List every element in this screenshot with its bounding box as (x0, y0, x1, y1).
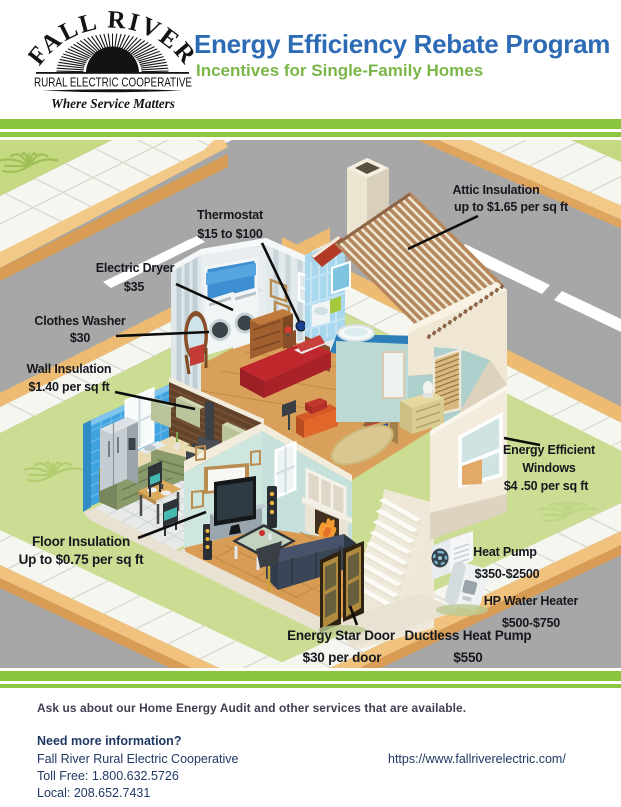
svg-text:$35: $35 (124, 280, 145, 294)
svg-text:Ductless Heat Pump: Ductless Heat Pump (405, 628, 532, 643)
svg-text:Wall Insulation: Wall Insulation (27, 362, 112, 376)
svg-text:$15 to $100: $15 to $100 (197, 227, 262, 241)
svg-text:Clothes Washer: Clothes Washer (34, 314, 126, 328)
svg-text:Electric Dryer: Electric Dryer (96, 261, 175, 275)
svg-text:HP Water Heater: HP Water Heater (484, 594, 579, 608)
svg-text:Thermostat: Thermostat (197, 208, 264, 222)
svg-text:Where Service Matters: Where Service Matters (51, 96, 175, 111)
svg-text:Attic Insulation: Attic Insulation (452, 183, 539, 197)
svg-text:Energy Efficient: Energy Efficient (503, 443, 596, 457)
svg-text:$4 .50 per sq ft: $4 .50 per sq ft (504, 479, 589, 493)
svg-text:up to $1.65 per sq ft: up to $1.65 per sq ft (454, 200, 569, 214)
svg-text:$1.40 per sq ft: $1.40 per sq ft (28, 380, 110, 394)
svg-text:$550: $550 (453, 650, 482, 665)
svg-text:Energy Star Door: Energy Star Door (287, 628, 396, 643)
svg-text:Floor Insulation: Floor Insulation (32, 534, 130, 549)
svg-text:RURAL ELECTRIC COOPERATIVE: RURAL ELECTRIC COOPERATIVE (34, 76, 192, 90)
svg-text:Windows: Windows (522, 461, 576, 475)
svg-text:Heat Pump: Heat Pump (473, 545, 537, 559)
svg-text:$350-$2500: $350-$2500 (475, 567, 540, 581)
svg-text:$30: $30 (70, 331, 91, 345)
svg-text:Up to $0.75 per sq ft: Up to $0.75 per sq ft (19, 552, 145, 567)
svg-text:$30 per door: $30 per door (303, 650, 383, 665)
